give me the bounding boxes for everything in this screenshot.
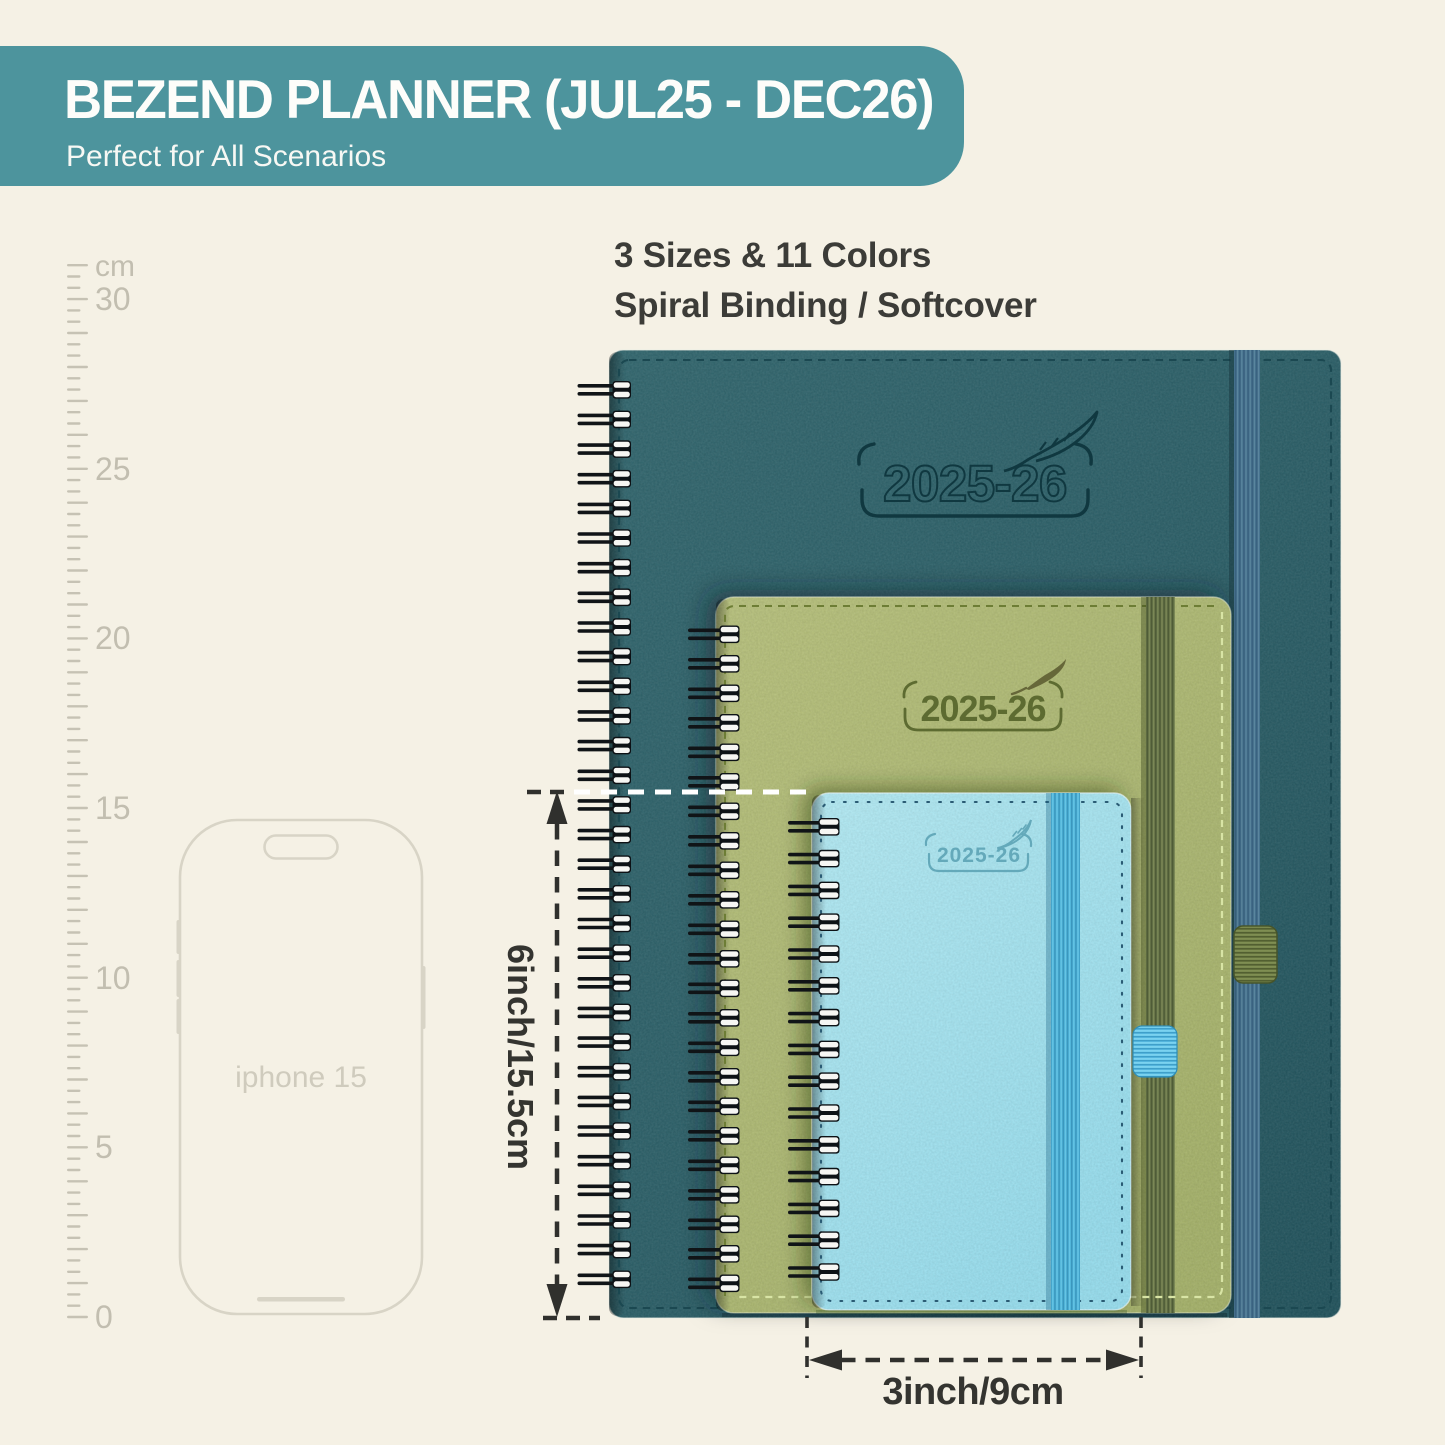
- svg-text:2025-26: 2025-26: [920, 688, 1045, 729]
- svg-text:10: 10: [95, 960, 131, 996]
- svg-text:iphone 15: iphone 15: [235, 1061, 367, 1094]
- svg-text:30: 30: [95, 281, 131, 317]
- svg-text:6inch/15.5cm: 6inch/15.5cm: [500, 944, 541, 1170]
- svg-text:2025-26: 2025-26: [883, 455, 1067, 512]
- svg-text:cm: cm: [95, 250, 135, 283]
- svg-text:15: 15: [95, 790, 131, 826]
- svg-text:0: 0: [95, 1299, 113, 1335]
- svg-text:5: 5: [95, 1129, 113, 1165]
- svg-text:25: 25: [95, 451, 131, 487]
- svg-text:3inch/9cm: 3inch/9cm: [882, 1371, 1063, 1413]
- svg-text:2025-26: 2025-26: [937, 844, 1021, 867]
- svg-text:20: 20: [95, 620, 131, 656]
